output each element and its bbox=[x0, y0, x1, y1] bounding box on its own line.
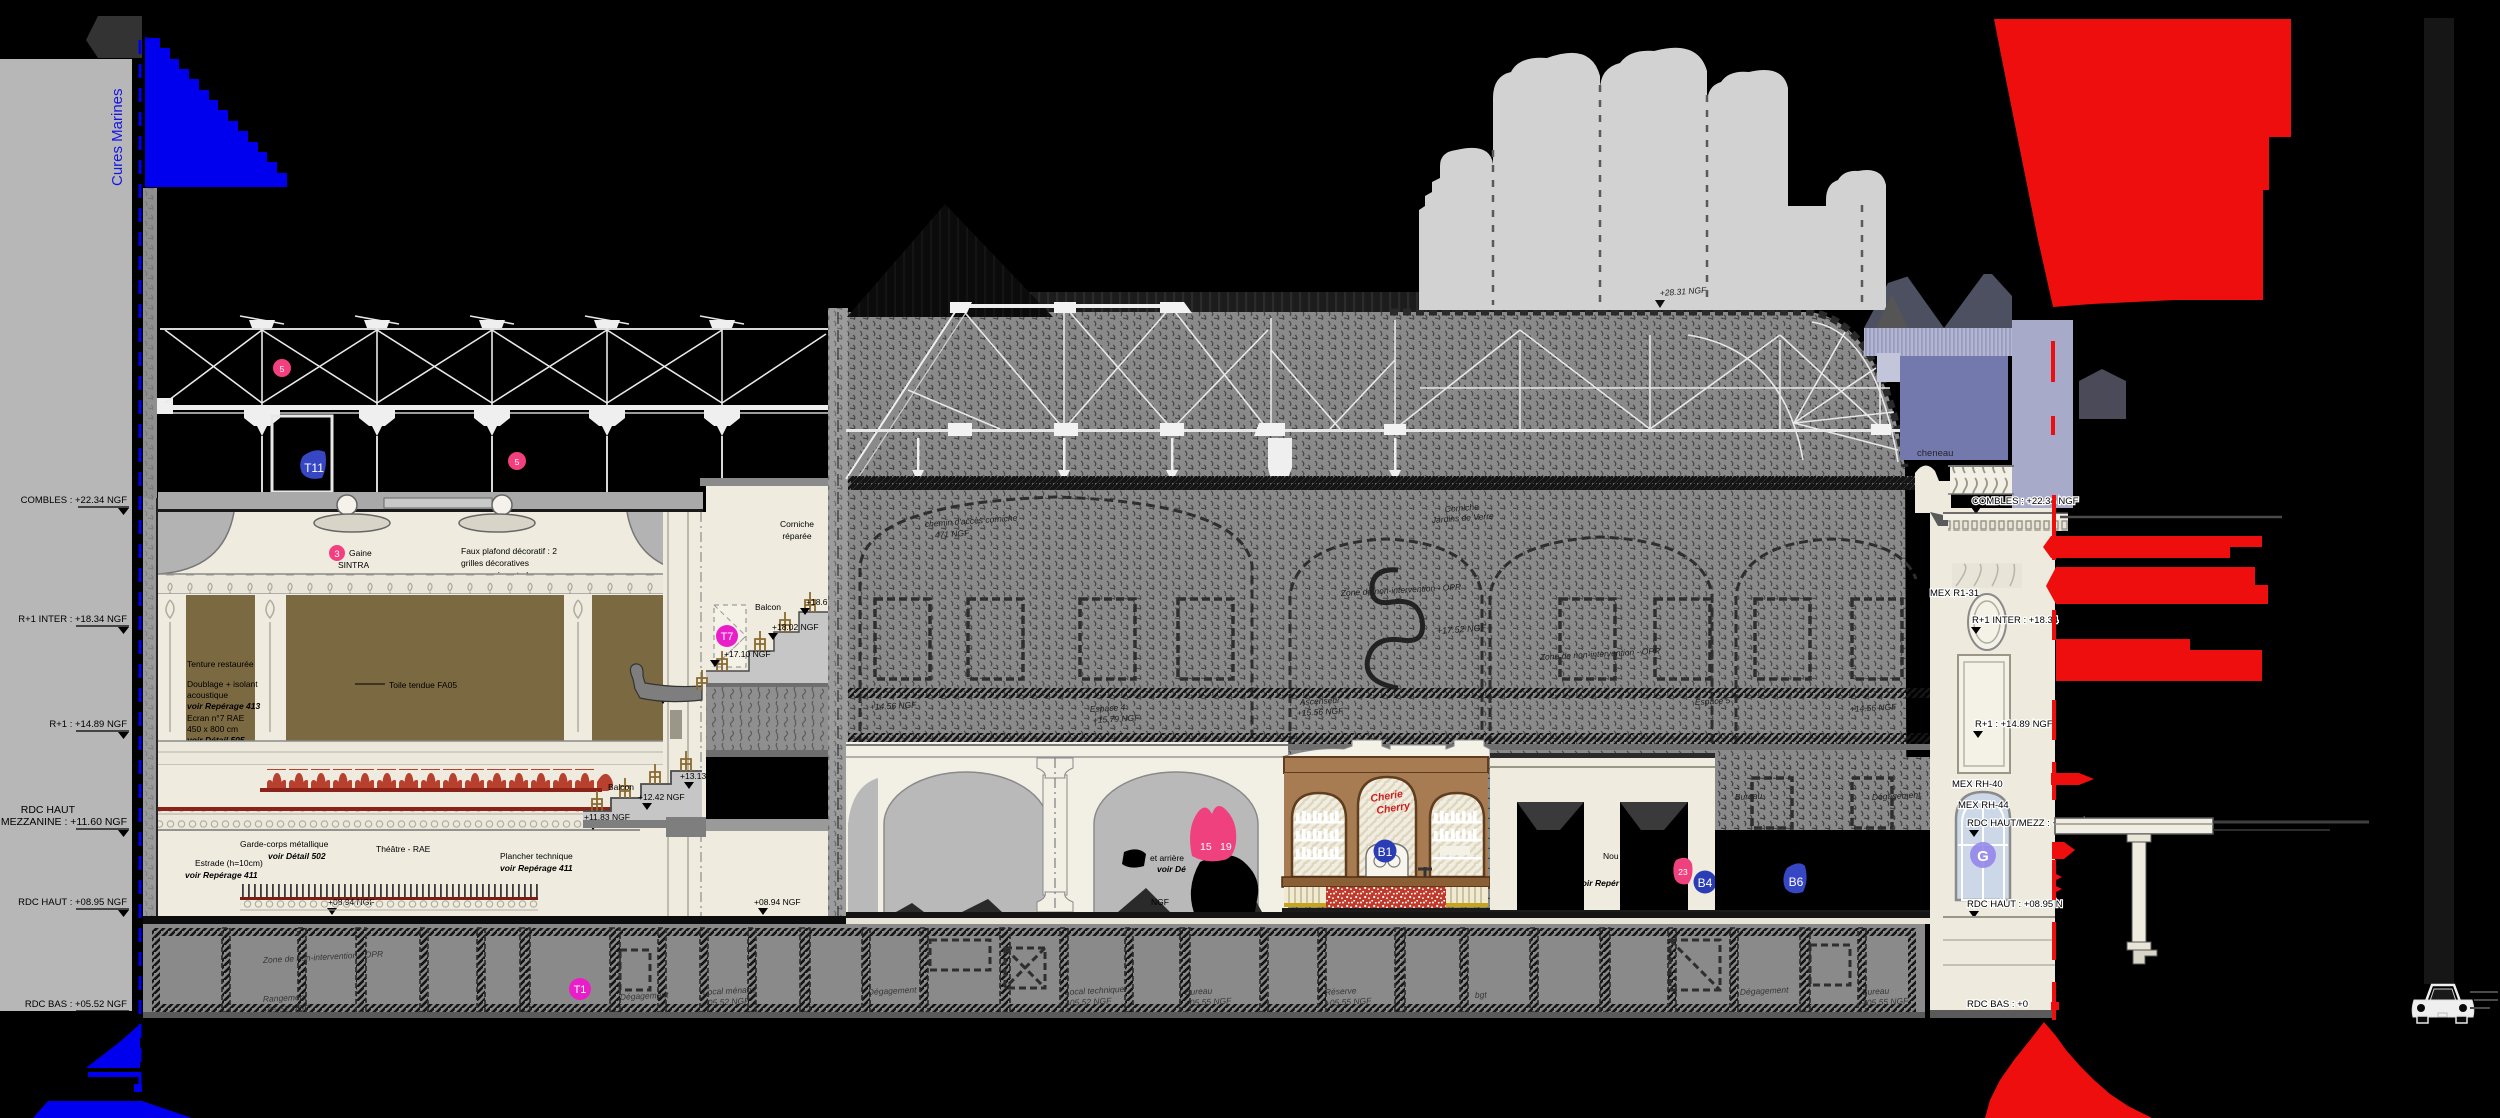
svg-text:Nou: Nou bbox=[1603, 851, 1619, 861]
svg-text:R+1 : +14.89 NGF: R+1 : +14.89 NGF bbox=[49, 719, 127, 730]
svg-text:grilles décoratives: grilles décoratives bbox=[461, 558, 529, 568]
svg-text:Plancher technique: Plancher technique bbox=[500, 851, 573, 861]
svg-text:+17.10 NGF: +17.10 NGF bbox=[724, 649, 771, 659]
svg-text:RDC HAUT: RDC HAUT bbox=[21, 804, 76, 816]
svg-text:Gaine: Gaine bbox=[349, 548, 372, 558]
svg-text:cheneau: cheneau bbox=[1917, 448, 1953, 459]
svg-text:MEX R1-31: MEX R1-31 bbox=[1930, 588, 1979, 599]
svg-text:Espace 4: Espace 4 bbox=[1090, 702, 1126, 714]
svg-text:Ecran n°7 RAE: Ecran n°7 RAE bbox=[187, 713, 245, 723]
svg-text:Faux plafond décoratif : 2: Faux plafond décoratif : 2 bbox=[461, 546, 557, 556]
svg-text:Bureau: Bureau bbox=[1735, 791, 1763, 802]
svg-text:MEX RH-44: MEX RH-44 bbox=[1958, 800, 2009, 811]
svg-text:RDC HAUT : +08.95 N: RDC HAUT : +08.95 N bbox=[1967, 899, 2063, 910]
svg-text:NGF: NGF bbox=[1151, 897, 1169, 907]
svg-text:19: 19 bbox=[1220, 841, 1232, 853]
svg-text:voir Repérage 411: voir Repérage 411 bbox=[185, 870, 258, 880]
svg-text:B6: B6 bbox=[1789, 875, 1804, 889]
svg-text:Balcon: Balcon bbox=[755, 602, 781, 612]
svg-text:Théâtre - RAE: Théâtre - RAE bbox=[376, 844, 431, 854]
svg-text:voir Repérage 411: voir Repérage 411 bbox=[500, 863, 573, 873]
svg-text:COMBLES : +22.34 NGF: COMBLES : +22.34 NGF bbox=[1972, 496, 2079, 507]
svg-text:R+1 INTER : +18.34 NGF: R+1 INTER : +18.34 NGF bbox=[18, 614, 127, 625]
svg-text:Réserve: Réserve bbox=[1325, 985, 1357, 997]
svg-text:T7: T7 bbox=[721, 631, 734, 643]
svg-text:et arrière: et arrière bbox=[1150, 853, 1184, 863]
svg-text:B1: B1 bbox=[1378, 845, 1393, 859]
svg-text:Balcon: Balcon bbox=[608, 782, 634, 792]
svg-text:3: 3 bbox=[334, 549, 339, 560]
svg-text:SINTRA: SINTRA bbox=[338, 560, 370, 570]
svg-text:Corniche: Corniche bbox=[780, 519, 814, 529]
svg-text:Tenture restaurée: Tenture restaurée bbox=[187, 659, 254, 669]
svg-text:RDC BAS : +0: RDC BAS : +0 bbox=[1967, 999, 2028, 1010]
svg-text:voir Détail 502: voir Détail 502 bbox=[268, 851, 326, 861]
svg-text:RDC BAS : +05.52 NGF: RDC BAS : +05.52 NGF bbox=[25, 999, 127, 1010]
svg-text:Garde-corps métallique: Garde-corps métallique bbox=[240, 839, 329, 849]
svg-text:Bureau: Bureau bbox=[1185, 986, 1213, 997]
svg-text:T11: T11 bbox=[304, 461, 324, 475]
svg-text:Doublage + isolant: Doublage + isolant bbox=[187, 679, 258, 689]
svg-text:T1: T1 bbox=[574, 984, 587, 996]
svg-text:R+1 : +14.89 NGF: R+1 : +14.89 NGF bbox=[1975, 719, 2053, 730]
svg-text:+18.02 NGF: +18.02 NGF bbox=[772, 622, 819, 632]
svg-text:MEX RH-40: MEX RH-40 bbox=[1952, 779, 2003, 790]
svg-text:G: G bbox=[1977, 848, 1989, 865]
svg-text:+13.13: +13.13 bbox=[680, 771, 707, 781]
svg-text:RDC HAUT : +08.95 NGF: RDC HAUT : +08.95 NGF bbox=[18, 897, 127, 908]
svg-text:réparée: réparée bbox=[782, 531, 812, 541]
svg-text:+08.94 NGF: +08.94 NGF bbox=[754, 897, 801, 907]
svg-text:5: 5 bbox=[280, 364, 285, 374]
svg-text:Toile tendue FA05: Toile tendue FA05 bbox=[389, 680, 457, 690]
svg-text:Espace 5: Espace 5 bbox=[1695, 695, 1731, 707]
svg-text:5: 5 bbox=[515, 457, 520, 467]
svg-text:Estrade (h=10cm): Estrade (h=10cm) bbox=[195, 858, 263, 868]
svg-text:Bureau: Bureau bbox=[1862, 986, 1890, 997]
svg-text:voir Repér: voir Repér bbox=[1577, 878, 1620, 888]
svg-text:voir Dé: voir Dé bbox=[1157, 864, 1186, 874]
svg-text:B4: B4 bbox=[1698, 876, 1713, 890]
svg-text:+12.42 NGF: +12.42 NGF bbox=[638, 792, 685, 802]
svg-text:voir Repérage 413: voir Repérage 413 bbox=[187, 701, 261, 711]
svg-text:23: 23 bbox=[1678, 867, 1688, 877]
svg-text:15: 15 bbox=[1200, 841, 1212, 853]
svg-text:MEZZANINE : +11.60 NGF: MEZZANINE : +11.60 NGF bbox=[1, 816, 127, 828]
svg-text:bgt: bgt bbox=[1475, 989, 1488, 1000]
svg-text:S: S bbox=[1197, 899, 1203, 909]
svg-text:COMBLES : +22.34 NGF: COMBLES : +22.34 NGF bbox=[21, 495, 128, 506]
svg-text:acoustique: acoustique bbox=[187, 690, 228, 700]
svg-text:Cures Marines: Cures Marines bbox=[109, 88, 126, 186]
svg-text:450 x 800 cm: 450 x 800 cm bbox=[187, 724, 238, 734]
svg-text:R+1 INTER : +18.34: R+1 INTER : +18.34 bbox=[1972, 615, 2058, 626]
